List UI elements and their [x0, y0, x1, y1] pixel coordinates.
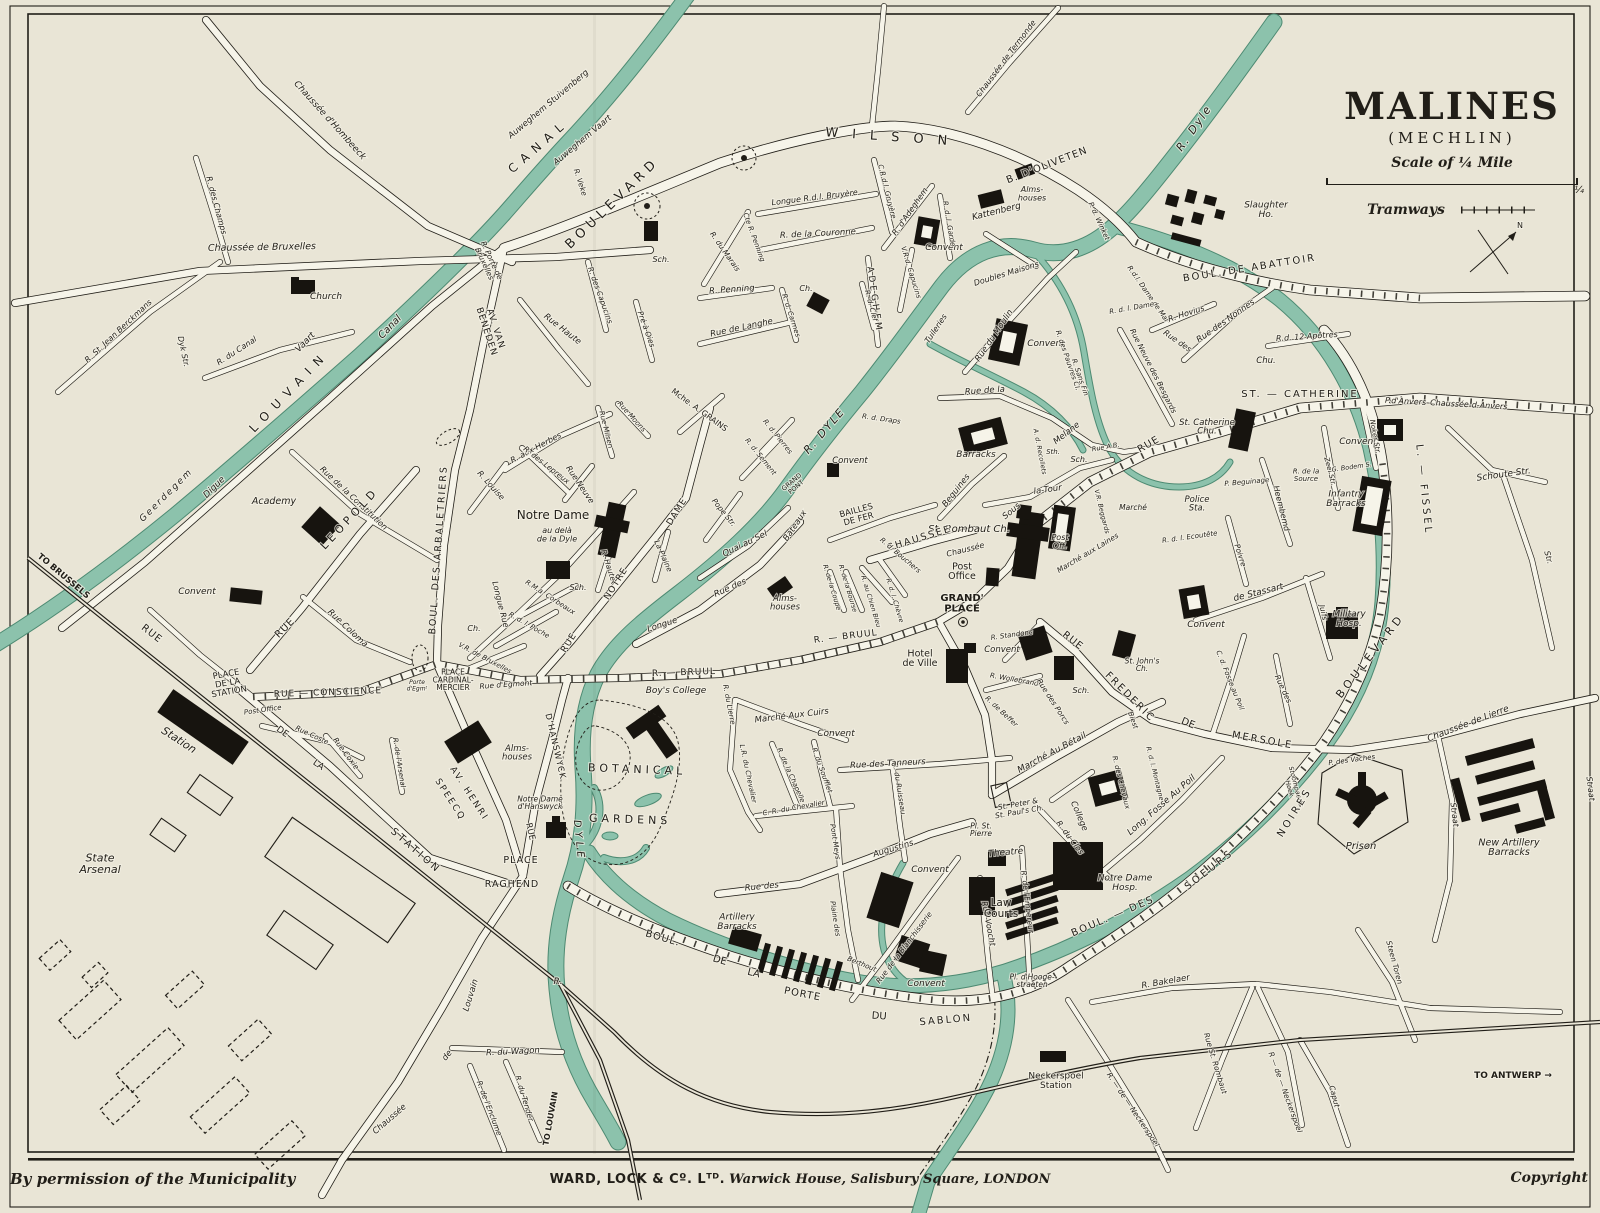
map-label: PORTE — [783, 986, 822, 1004]
map-label: Rue des — [744, 880, 780, 894]
map-label: Convent — [178, 587, 216, 597]
map-label: InfantryBarracks — [1326, 490, 1366, 509]
map-label: Louvain — [461, 978, 480, 1013]
map-label: Chaussée de Bruxelles — [208, 241, 316, 254]
map-label: St. John'sCh. — [1125, 656, 1160, 673]
map-label: DAME — [665, 496, 690, 527]
map-label: R. du Tender — [513, 1074, 536, 1123]
title-block: MALINES (MECHLIN) Scale of ¼ Mile ¼ Tram… — [1318, 88, 1586, 218]
map-label: Prison — [1346, 841, 1377, 852]
map-label: Post Office — [243, 703, 282, 716]
map-label: N — [1517, 221, 1523, 230]
map-label: P. Beguinage — [1224, 476, 1270, 488]
map-label: Sth. — [1046, 448, 1060, 456]
map-page: TO BRUSSELSChaussée d'HombeeckR. des Cha… — [0, 0, 1600, 1213]
map-label: Str. — [1542, 550, 1554, 565]
map-label: R.d.l. Dame de Malⁿ — [1126, 264, 1172, 325]
map-label: L. — FISSEL — [1413, 444, 1433, 536]
map-label: R. — [553, 977, 562, 987]
map-label: R. Hovius — [1167, 304, 1206, 324]
map-label: SABLON — [919, 1013, 973, 1029]
map-label: Chu. — [1256, 356, 1275, 366]
map-label: R. d. Draps — [861, 412, 901, 425]
scale-bar — [1326, 174, 1578, 185]
map-label: Hotelde Ville — [903, 648, 938, 669]
map-label: R. d. l. Ecoutête — [1162, 529, 1218, 545]
map-label: R. de laSource — [1293, 468, 1320, 483]
map-label: RUE — [139, 622, 164, 645]
map-label: B. D'OLIVETEN — [1005, 145, 1089, 186]
map-label: Convent — [984, 645, 1020, 655]
map-label: BOTANICAL — [588, 761, 687, 777]
map-label: Berthout — [846, 955, 878, 974]
map-label: Rue des Nonnes — [1195, 297, 1258, 345]
map-label: V.R. Beggards — [1093, 489, 1112, 535]
map-label: Poivre — [1232, 543, 1248, 568]
map-label: Rue Coloma — [325, 607, 369, 649]
map-label: R. Dyle — [1173, 102, 1214, 153]
scale-label: Scale of ¼ Mile — [1318, 155, 1586, 171]
publisher-imprint: WARD, LOCK & Cº. Lᵀᴰ. Warwick House, Sal… — [0, 1172, 1600, 1187]
map-label: Alms-houses — [502, 744, 533, 763]
map-label: Ported'Egmᵗ — [407, 679, 428, 692]
map-label: Boy's College — [646, 686, 707, 696]
map-label: Convent — [907, 979, 945, 989]
map-label: Theatre — [988, 846, 1024, 859]
map-label: DU — [871, 1010, 887, 1022]
imprint-footer: By permission of the Municipality WARD, … — [0, 1164, 1600, 1213]
map-subtitle: (MECHLIN) — [1318, 129, 1586, 147]
map-label: Convent — [832, 456, 868, 466]
map-label: R. du Soufflet — [810, 747, 834, 795]
map-label: DE — [711, 953, 728, 967]
map-label: Sch. — [569, 583, 586, 592]
map-label: GRAND'PLACE — [940, 593, 983, 615]
map-label: Notre Dame — [517, 508, 590, 522]
scale-fraction: ¼ — [1318, 185, 1584, 196]
map-label: R. de l'Enclume — [475, 1079, 504, 1137]
map-title: MALINES — [1318, 88, 1586, 125]
map-label: LA — [746, 967, 761, 981]
map-label: Marché — [1119, 503, 1147, 512]
map-label: Longue Rue — [490, 580, 510, 628]
map-label: Ch. — [799, 284, 812, 293]
map-label: C. d. Fosse au Poil — [1214, 649, 1245, 711]
map-label: Notre Damed'Hanswyck — [517, 794, 563, 811]
map-label: ST. — CATHERINE — [1241, 389, 1359, 400]
map-label: Sch. — [652, 255, 669, 264]
map-label: R. du Wagon — [486, 1046, 540, 1059]
map-label: Plaine des — [828, 900, 842, 937]
map-label: RAGHEND — [485, 879, 539, 890]
map-label: R. Penning — [709, 283, 756, 296]
map-label: Chaussée de Termonde — [973, 18, 1037, 99]
map-label: Rue des Porcs — [1035, 677, 1071, 726]
tramway-symbol-icon — [1459, 205, 1537, 215]
buildings — [39, 163, 1555, 1169]
fold-crease — [593, 14, 596, 1154]
map-label: PostOffice — [948, 561, 976, 582]
map-label: MilitaryHosp. — [1332, 610, 1366, 629]
tramways-label: Tramways — [1367, 202, 1445, 218]
map-label: RUE — [559, 631, 579, 655]
map-label: St. Peter &St. Paul's Ch. — [993, 795, 1044, 820]
map-label: RUE — CONSCIENCE — [274, 686, 383, 700]
footer-rule — [28, 1158, 1574, 1161]
map-label: Heembemd — [1271, 485, 1291, 533]
map-label: Barracks — [956, 450, 996, 460]
map-label: Academy — [251, 496, 297, 507]
map-label: Notre DameHosp. — [1098, 874, 1153, 893]
map-label: Convent — [817, 729, 855, 739]
map-label: Chaussée — [945, 540, 985, 559]
map-label: R. d. l. Montagne — [1144, 746, 1165, 802]
map-label: Alms-houses — [770, 594, 801, 613]
map-label: Convent — [911, 865, 949, 875]
map-label: Rue Moons — [616, 400, 648, 434]
map-label: Doubles Maisons — [973, 259, 1040, 287]
publisher-address: Warwick House, Salisbury Square, LONDON — [729, 1172, 1050, 1187]
map-label: Rue St. Rombaut — [1202, 1032, 1230, 1096]
map-label: New ArtilleryBarracks — [1478, 837, 1540, 858]
map-label: StateArsenal — [78, 852, 120, 877]
map-label: au delàde la Dyle — [537, 526, 577, 543]
map-label: R. au Chien Bleu — [859, 574, 882, 628]
map-label: Convent — [1187, 620, 1225, 630]
compass-icon — [1470, 230, 1516, 274]
map-label: PoliceSta. — [1185, 495, 1210, 514]
map-label: TO ANTWERP → — [1474, 1071, 1552, 1081]
map-label: Sch. — [1072, 686, 1089, 695]
publisher-name: WARD, LOCK & Cº. Lᵀᴰ. — [550, 1172, 725, 1187]
map-label: R. — de — Neckerspoel — [1105, 1071, 1162, 1150]
map-label: Sch. — [1070, 455, 1087, 464]
map-label: GARDENS — [589, 812, 672, 828]
map-label: R. St. Jean Berckmans — [83, 298, 154, 365]
map-label: Pl. St.Pierre — [970, 821, 992, 838]
map-label: R. de la Couronne — [780, 227, 857, 241]
map-label: R — de — Neckerspoel — [1267, 1050, 1305, 1134]
map-label: TO LOUVAIN — [541, 1091, 559, 1146]
map-label: R. d. l. Dame — [1109, 300, 1155, 316]
map-label: Alms-houses — [1018, 185, 1046, 202]
map-label: SlaughterHo. — [1244, 201, 1289, 220]
map-label: College — [1068, 800, 1090, 833]
map-label: Rue Haute — [542, 312, 583, 347]
map-label: PostOff. — [1051, 533, 1069, 550]
map-label: R. Veke — [572, 167, 589, 197]
map-label: Marché Au Bétail — [1015, 730, 1088, 776]
prison-building — [1318, 754, 1408, 854]
map-label: Rue des — [1162, 328, 1194, 354]
map-label: G. Bodem S. — [1331, 460, 1372, 474]
copyright-note: Copyright — [1510, 1170, 1588, 1186]
map-label: R. des Lepreux — [522, 444, 572, 486]
map-label: Straat — [1585, 776, 1597, 802]
map-label: NeckerspoelStation — [1028, 1072, 1083, 1091]
map-label: ArtilleryBarracks — [717, 913, 757, 932]
map-label: Dyk Str. — [176, 335, 191, 368]
map-label: Rue des Tanneurs — [850, 757, 927, 771]
map-label: PLACE — [503, 855, 538, 866]
map-label: la-Tour — [1033, 483, 1063, 497]
map-label: Augustins — [871, 838, 916, 860]
map-label: Rue d'Egmont — [479, 678, 533, 691]
map-label: Rue des — [712, 576, 748, 599]
map-label: Pl. d'Hooge-straeten — [1009, 972, 1054, 989]
map-label: Ch. — [467, 624, 480, 633]
map-label: Cte R. Penning — [741, 212, 766, 264]
map-label: Church — [310, 292, 342, 302]
